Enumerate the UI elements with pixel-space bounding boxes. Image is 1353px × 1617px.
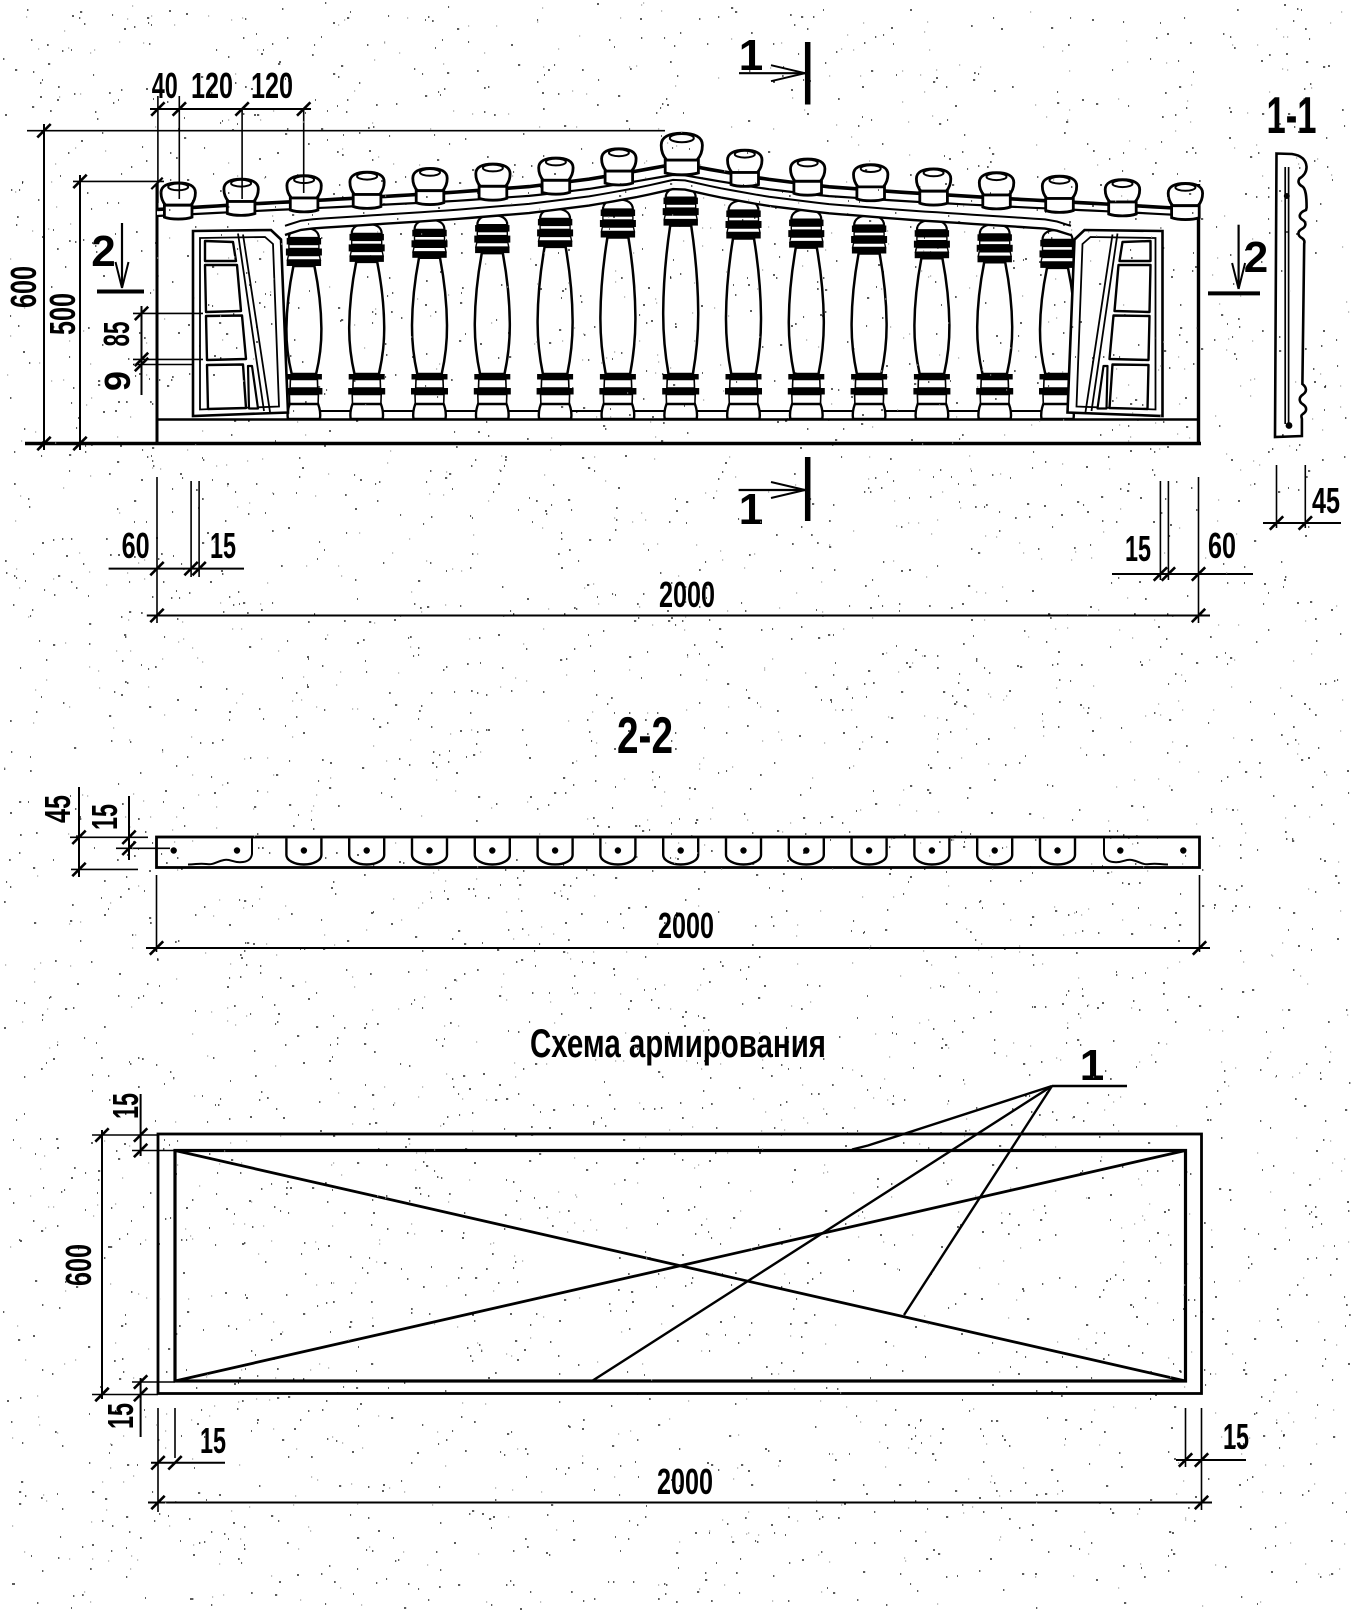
svg-text:2: 2	[1244, 233, 1268, 282]
svg-text:1: 1	[739, 31, 763, 80]
svg-text:15: 15	[100, 1403, 141, 1429]
svg-text:Схема армирования: Схема армирования	[530, 1022, 826, 1066]
svg-text:2000: 2000	[658, 905, 714, 946]
svg-text:45: 45	[37, 795, 78, 823]
svg-text:2000: 2000	[659, 574, 715, 615]
svg-text:15: 15	[105, 1093, 146, 1119]
svg-text:15: 15	[84, 804, 125, 830]
svg-text:120: 120	[251, 65, 293, 106]
svg-text:15: 15	[1125, 528, 1151, 569]
svg-text:45: 45	[1312, 480, 1340, 521]
svg-text:40: 40	[152, 65, 178, 106]
svg-text:15: 15	[210, 525, 236, 566]
svg-text:1: 1	[739, 485, 763, 534]
svg-text:9: 9	[97, 371, 138, 391]
svg-text:120: 120	[191, 65, 233, 106]
svg-text:1-1: 1-1	[1267, 87, 1317, 145]
svg-text:15: 15	[1223, 1416, 1249, 1457]
svg-text:500: 500	[42, 293, 83, 335]
svg-text:600: 600	[3, 266, 44, 308]
svg-text:15: 15	[200, 1420, 226, 1461]
svg-text:2-2: 2-2	[617, 707, 673, 765]
svg-text:85: 85	[96, 322, 137, 347]
svg-text:1: 1	[1080, 1041, 1104, 1090]
svg-text:60: 60	[1208, 525, 1236, 566]
svg-text:60: 60	[122, 525, 150, 566]
svg-text:2: 2	[91, 227, 115, 276]
svg-text:2000: 2000	[657, 1461, 713, 1502]
svg-text:600: 600	[58, 1244, 99, 1286]
